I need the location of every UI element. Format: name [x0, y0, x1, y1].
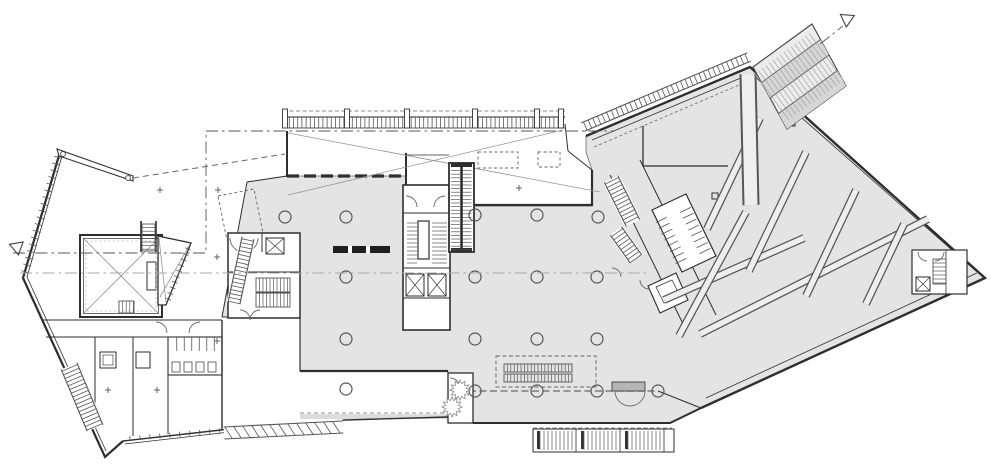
- wing-tip-core: [912, 250, 967, 294]
- hall-north-stair-box: [142, 224, 155, 251]
- center-core-block: [403, 185, 450, 330]
- canopy-joint-east: [126, 176, 131, 181]
- terrace-stair-block: [533, 429, 674, 452]
- equipment-box-a-inner: [103, 355, 113, 365]
- column: [340, 383, 352, 395]
- canopy-post: [283, 109, 288, 128]
- canopy-post: [473, 109, 478, 128]
- toilet-fixture-2: [184, 362, 192, 372]
- toilet-fixture-1: [172, 362, 180, 372]
- floor-plan-drawing: [0, 0, 1000, 468]
- entrance-mat: [612, 382, 645, 391]
- wing-brace: [748, 74, 751, 205]
- canopy-post: [559, 109, 564, 128]
- canopy-post: [535, 109, 540, 128]
- info-desk: [333, 246, 390, 253]
- info-desk-gap-a: [348, 246, 352, 253]
- hall-north-stair-walls: [141, 221, 156, 252]
- junction-thin-wall-b: [565, 124, 568, 151]
- skylight-box-b: [538, 152, 560, 167]
- south-facade-inner: [125, 432, 230, 444]
- setout-line-canopy: [820, 26, 843, 44]
- info-desk-gap-b: [366, 246, 370, 253]
- roof-edge-dashed: [133, 154, 285, 178]
- terrace-stair-start-1: [537, 431, 540, 449]
- entry-canopy-triangle: [57, 149, 133, 181]
- door-arc: [156, 322, 167, 333]
- section-marker-northeast: [840, 14, 854, 27]
- terrace-stair-start-2: [581, 431, 584, 449]
- toilet-fixture-4: [208, 362, 216, 372]
- escalator-cap-top: [451, 163, 472, 167]
- southwest-canopy-hatch-backing: [224, 420, 344, 441]
- canopy-post: [345, 109, 350, 128]
- canopy-joint-west: [61, 152, 66, 157]
- door-arc: [189, 322, 200, 333]
- canopy-post: [405, 109, 410, 128]
- terrace-stair-start-3: [625, 431, 628, 449]
- toilet-fixture-3: [196, 362, 204, 372]
- posts-layer: [283, 109, 564, 128]
- hall-screen-bar: [147, 262, 156, 290]
- equipment-box-b: [136, 352, 150, 368]
- west-facade: [23, 152, 123, 457]
- skylight-box-a: [478, 152, 518, 168]
- equipment-box-a: [100, 352, 116, 368]
- floor-plan-sheet: [0, 0, 1000, 468]
